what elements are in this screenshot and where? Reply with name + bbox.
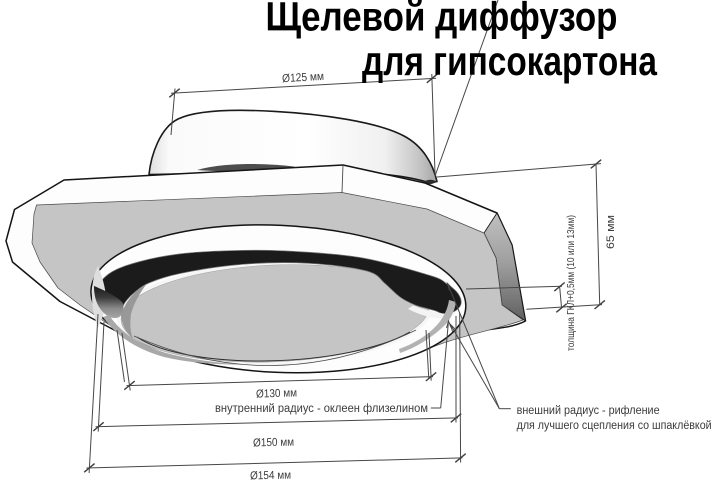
svg-text:Щелевой диффузор: Щелевой диффузор [266,0,618,40]
svg-text:65 мм: 65 мм [605,215,617,249]
svg-text:толщина ГКЛ+0,5мм (10 или 13мм: толщина ГКЛ+0,5мм (10 или 13мм) [565,215,577,351]
svg-text:Ø150 мм: Ø150 мм [253,437,294,450]
svg-text:для гипсокартона: для гипсокартона [362,38,657,84]
svg-text:внешний радиус - рифление: внешний радиус - рифление [517,405,660,417]
svg-text:Ø125 мм: Ø125 мм [282,71,325,85]
svg-text:Ø154 мм: Ø154 мм [250,470,291,483]
svg-text:внутренний радиус - оклеен фли: внутренний радиус - оклеен флизелином [215,403,428,415]
svg-text:Ø130 мм: Ø130 мм [256,387,297,400]
svg-text:для лучшего сцепления со шпакл: для лучшего сцепления со шпаклёвкой [517,420,712,432]
